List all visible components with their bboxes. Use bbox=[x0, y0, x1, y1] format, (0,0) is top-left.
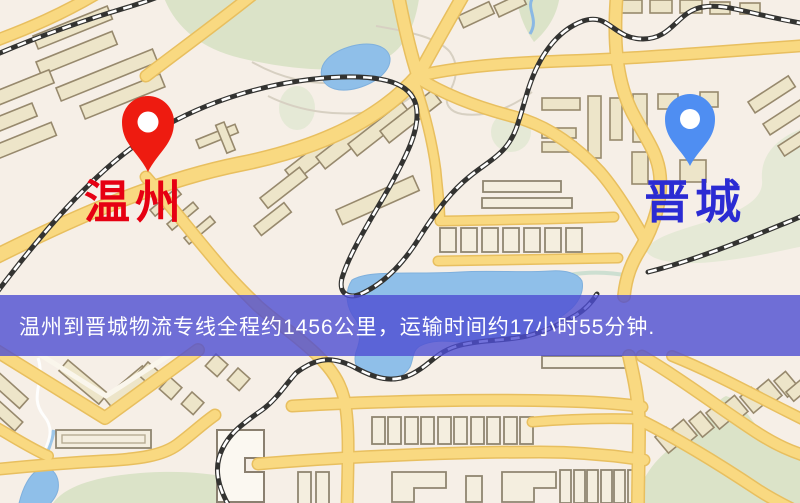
origin-city-label: 温州 bbox=[84, 179, 186, 225]
route-info-text: 温州到晋城物流专线全程约1456公里，运输时间约17小时55分钟. bbox=[19, 311, 655, 341]
destination-city-label: 晋城 bbox=[644, 179, 746, 225]
map-screenshot: 温州 晋城 温州到晋城物流专线全程约1456公里，运输时间约17小时55分钟. bbox=[0, 0, 800, 503]
map-canvas bbox=[0, 0, 800, 503]
route-info-banner: 温州到晋城物流专线全程约1456公里，运输时间约17小时55分钟. bbox=[0, 295, 800, 356]
